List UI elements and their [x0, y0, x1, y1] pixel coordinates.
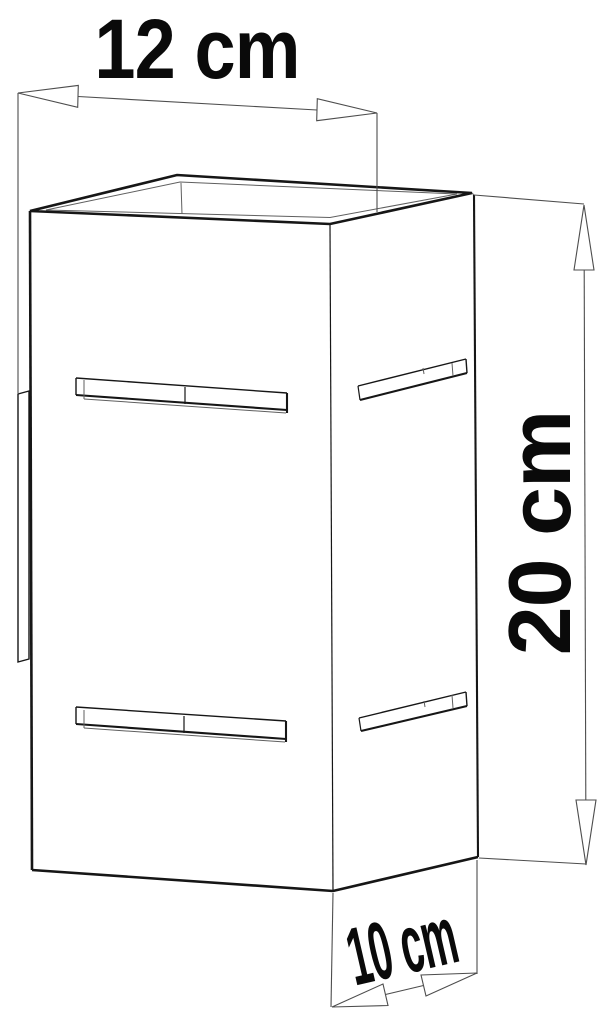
side-lower-slot: [359, 692, 467, 731]
front-upper-slot: [76, 378, 287, 413]
side-upper-slot: [358, 359, 467, 400]
inner-back-corner-edge: [181, 183, 182, 214]
height-extension-line-top: [474, 195, 584, 204]
arrow-left-icon: [18, 85, 78, 107]
dimension-diagram: 12 cm 20 cm 10 cm: [0, 0, 614, 1020]
arrow-right-icon: [317, 99, 377, 121]
lamp-body: [18, 175, 478, 891]
width-label: 12 cm: [94, 7, 299, 91]
arrow-down-icon: [576, 800, 596, 865]
rim-corner-connector: [472, 193, 474, 195]
mount-plate: [18, 391, 29, 662]
arrow-up-icon: [574, 205, 594, 270]
bottom-edges: [32, 857, 478, 891]
height-label: 20 cm: [496, 411, 584, 656]
depth-extension-line-left: [331, 893, 333, 1007]
front-lower-slot: [76, 707, 286, 742]
front-left-edge: [30, 211, 32, 870]
height-extension-line-bottom: [479, 858, 586, 864]
right-back-edge: [474, 195, 478, 857]
width-dimension-line: [78, 97, 317, 111]
front-middle-edge: [330, 224, 333, 891]
width-dimension: [18, 85, 377, 393]
